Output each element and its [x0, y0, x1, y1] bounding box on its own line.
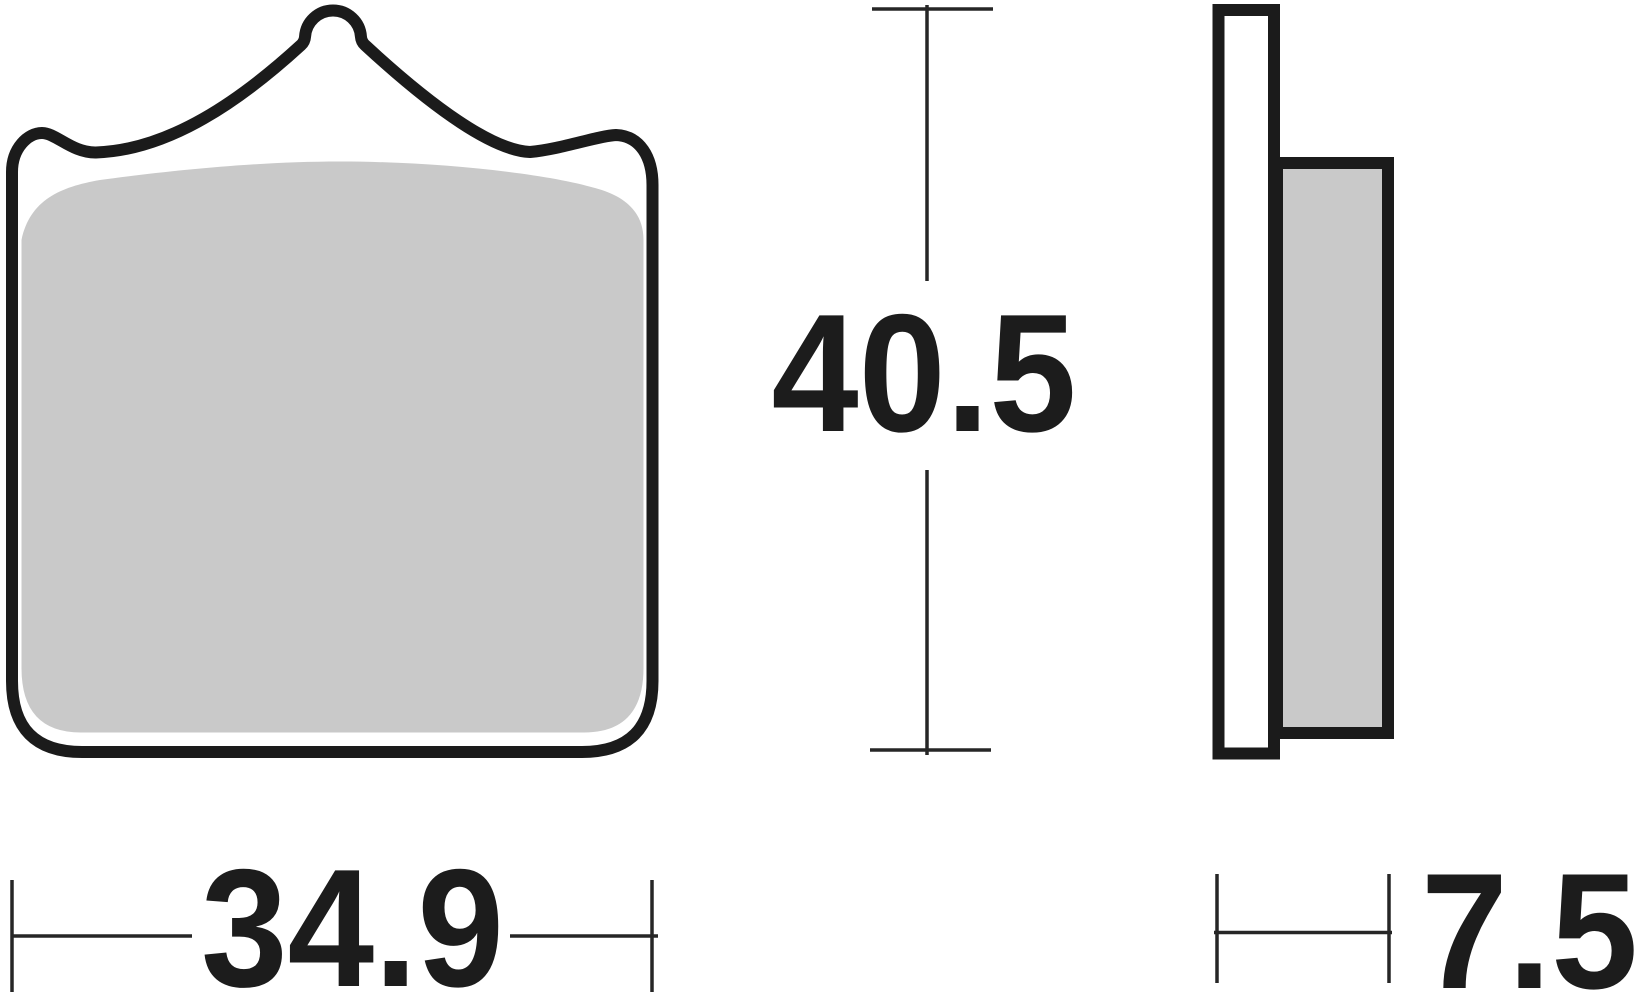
- svg-text:40.5: 40.5: [772, 279, 1077, 467]
- svg-text:34.9: 34.9: [201, 834, 504, 1000]
- svg-text:7.5: 7.5: [1421, 839, 1638, 1000]
